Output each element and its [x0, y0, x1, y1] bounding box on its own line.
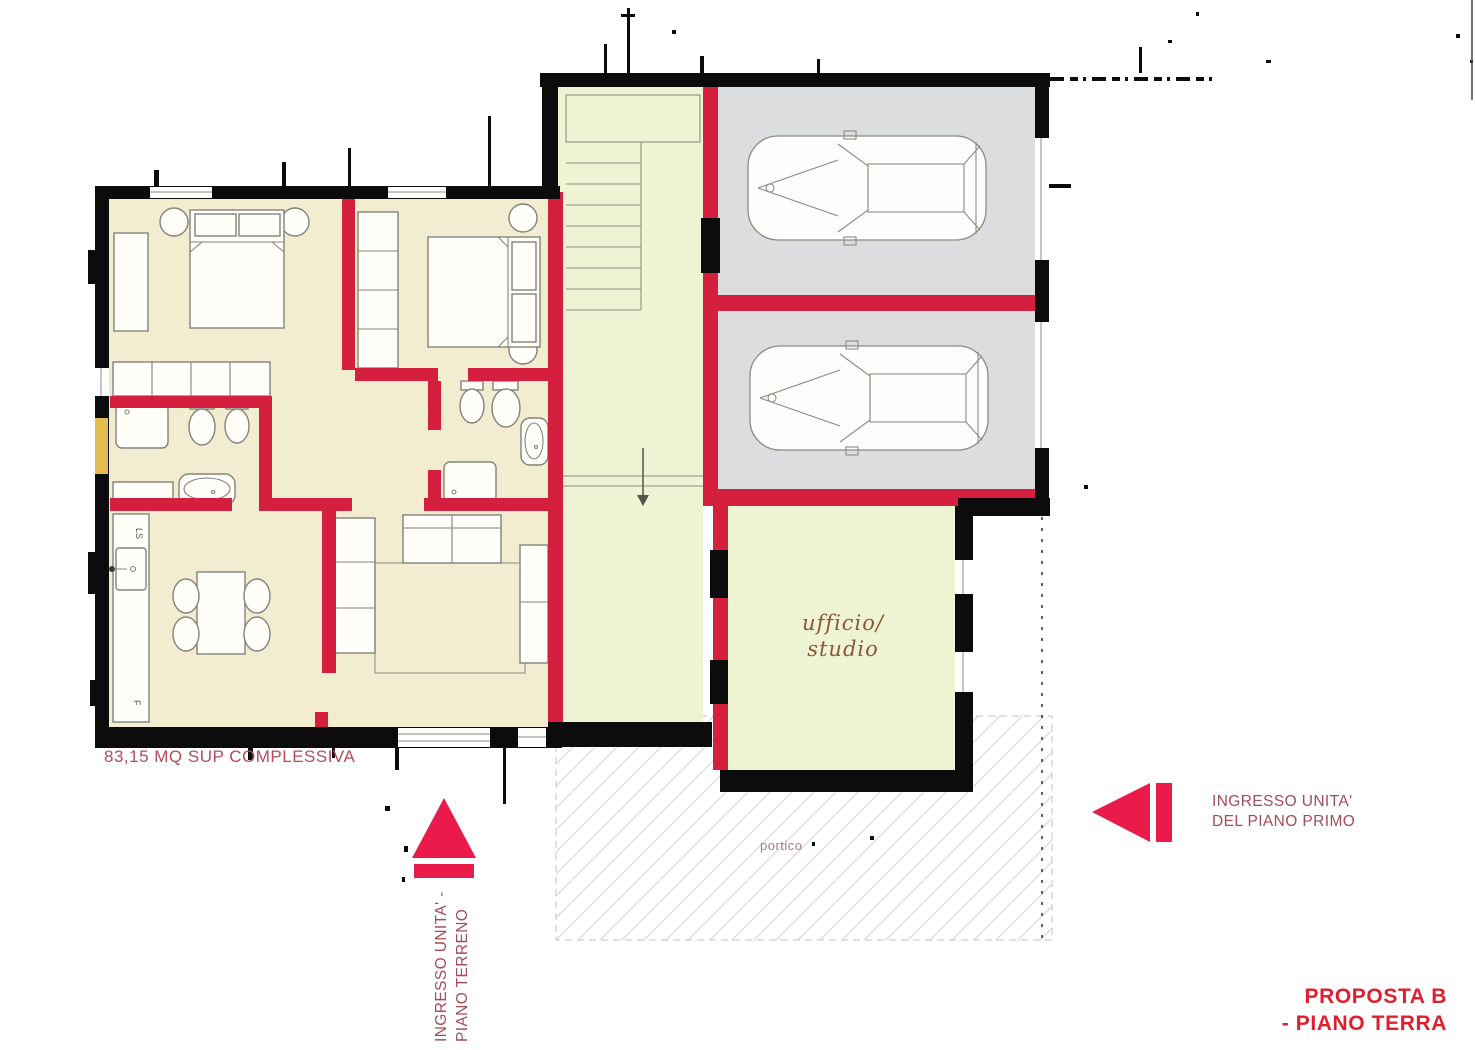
kitchen-fridge-label: F	[132, 700, 142, 706]
entrance-first-label: INGRESSO UNITA' DEL PIANO PRIMO	[1212, 793, 1355, 830]
entrance-ground-label: INGRESSO UNITA' - PIANO TERRENO	[433, 891, 471, 1042]
kitchen-sink-label: LS	[134, 528, 144, 539]
svg-text:- PIANO TERRA: - PIANO TERRA	[1282, 1012, 1447, 1035]
closet-row	[113, 362, 270, 396]
entrance-door-marker	[95, 418, 108, 474]
plan-title: PROPOSTA B - PIANO TERRA	[1282, 985, 1447, 1035]
car-garage-1	[748, 131, 986, 245]
svg-text:ufficio/: ufficio/	[802, 611, 885, 635]
svg-text:PROPOSTA B: PROPOSTA B	[1304, 985, 1447, 1008]
svg-text:INGRESSO UNITA': INGRESSO UNITA'	[1212, 793, 1352, 810]
portico-label: portico	[760, 838, 803, 853]
car-garage-2	[750, 341, 988, 455]
floor-plan: LS F	[0, 0, 1475, 1050]
svg-text:PIANO TERRENO: PIANO TERRENO	[454, 909, 471, 1042]
total-area-label: 83,15 MQ SUP COMPLESSIVA	[104, 747, 356, 766]
svg-text:DEL PIANO PRIMO: DEL PIANO PRIMO	[1212, 813, 1355, 830]
svg-text:INGRESSO UNITA' -: INGRESSO UNITA' -	[433, 891, 450, 1042]
entrance-first-arrow-icon	[1092, 783, 1172, 842]
stairwell-floor	[558, 87, 703, 727]
svg-text:studio: studio	[807, 637, 879, 661]
entrance-ground-arrow-icon	[412, 798, 476, 878]
